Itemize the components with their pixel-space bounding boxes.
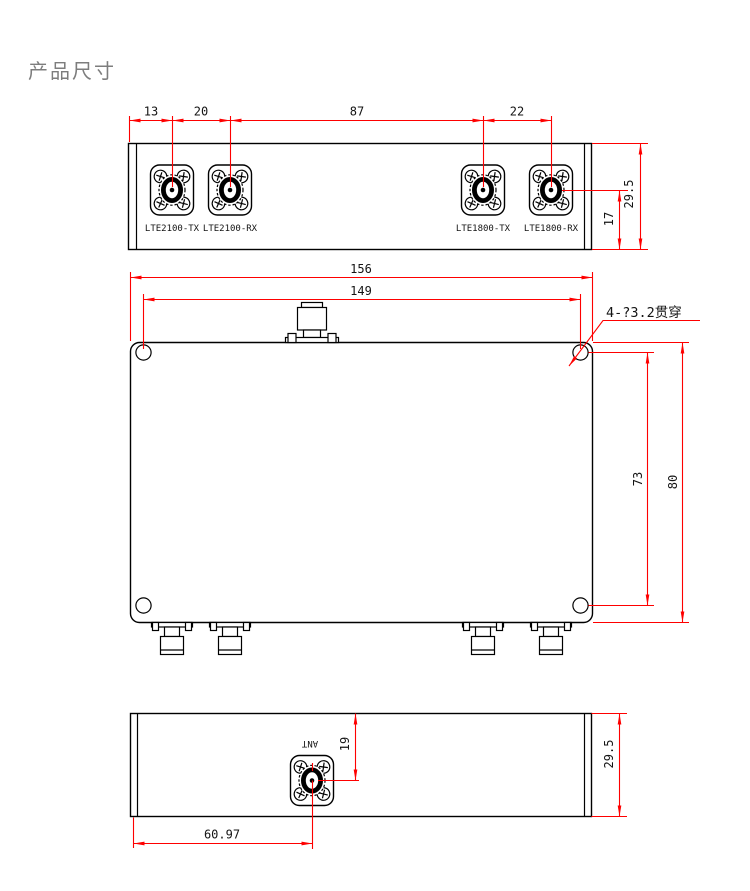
page-title: 产品尺寸 bbox=[28, 59, 116, 83]
bottom-view-body bbox=[131, 714, 592, 817]
ant-port-side-view bbox=[286, 303, 339, 343]
front-view-dimensions: 156 149 73 80 4-?3.2贯穿 bbox=[131, 262, 701, 623]
dimension-drawing: 产品尺寸 LTE2100-TX LTE2100-RX LTE1800-TX LT… bbox=[0, 0, 750, 891]
drawing-canvas: 产品尺寸 LTE2100-TX LTE2100-RX LTE1800-TX LT… bbox=[0, 0, 750, 891]
dim-text-87: 87 bbox=[350, 105, 364, 119]
dim-text-149: 149 bbox=[350, 284, 372, 298]
dim-text-20: 20 bbox=[194, 105, 208, 119]
hole-note-text: 4-?3.2贯穿 bbox=[606, 305, 682, 321]
bottom-view-dimensions: 19 29.5 60.97 bbox=[134, 714, 628, 850]
extension-lines bbox=[131, 272, 690, 623]
label-lte2100-rx: LTE2100-RX bbox=[203, 224, 258, 234]
dim-text-19: 19 bbox=[338, 737, 352, 751]
label-lte2100-tx: LTE2100-TX bbox=[145, 224, 200, 234]
front-view bbox=[131, 303, 593, 655]
mount-hole-bottom-left bbox=[136, 598, 151, 613]
dim-text-22: 22 bbox=[510, 105, 524, 119]
dim-text-13: 13 bbox=[144, 105, 158, 119]
port-side-lte2100-tx bbox=[152, 623, 193, 655]
dim-text-60-97: 60.97 bbox=[204, 828, 240, 842]
dim-text-17: 17 bbox=[602, 212, 616, 226]
dim-text-29-5-top: 29.5 bbox=[622, 180, 636, 209]
bottom-view: ANT bbox=[131, 714, 592, 817]
port-side-lte1800-rx bbox=[531, 623, 572, 655]
top-view: LTE2100-TX LTE2100-RX LTE1800-TX LTE1800… bbox=[129, 144, 592, 250]
label-ant: ANT bbox=[301, 738, 318, 748]
front-view-body bbox=[131, 343, 593, 623]
dim-text-156: 156 bbox=[350, 262, 372, 276]
mount-hole-bottom-right bbox=[573, 598, 588, 613]
label-lte1800-rx: LTE1800-RX bbox=[524, 224, 579, 234]
label-lte1800-tx: LTE1800-TX bbox=[456, 224, 511, 234]
dim-text-80: 80 bbox=[666, 475, 680, 489]
port-side-lte1800-tx bbox=[463, 623, 504, 655]
hole-note-leader bbox=[569, 321, 700, 367]
port-side-lte2100-rx bbox=[210, 623, 251, 655]
dim-text-29-5-bottom: 29.5 bbox=[602, 740, 616, 769]
dim-text-73: 73 bbox=[631, 472, 645, 486]
